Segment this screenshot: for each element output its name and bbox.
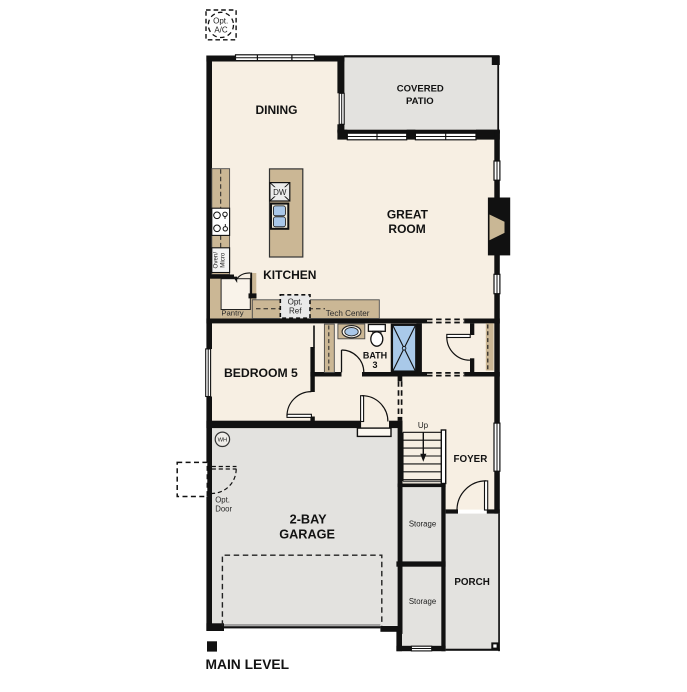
svg-text:DW: DW: [273, 188, 287, 197]
svg-text:Opt.: Opt.: [215, 496, 230, 505]
svg-text:FOYER: FOYER: [454, 454, 488, 465]
svg-text:Micro: Micro: [220, 252, 227, 268]
svg-text:Storage: Storage: [409, 597, 436, 606]
svg-text:3: 3: [372, 360, 377, 370]
svg-text:DINING: DINING: [256, 103, 298, 117]
svg-text:GARAGE: GARAGE: [279, 527, 335, 541]
svg-text:MAIN LEVEL: MAIN LEVEL: [206, 657, 290, 672]
svg-text:Up: Up: [418, 421, 429, 430]
svg-text:A/C: A/C: [214, 26, 228, 35]
svg-text:Oven/: Oven/: [213, 252, 220, 269]
svg-text:PORCH: PORCH: [454, 577, 489, 588]
svg-text:Storage: Storage: [409, 519, 436, 528]
svg-text:2-BAY: 2-BAY: [290, 512, 327, 526]
svg-text:WH: WH: [218, 437, 228, 443]
svg-text:ROOM: ROOM: [388, 222, 425, 236]
svg-text:Tech Center: Tech Center: [326, 309, 370, 318]
svg-text:BATH: BATH: [363, 350, 387, 360]
svg-text:Door: Door: [215, 504, 232, 513]
svg-text:Ref: Ref: [289, 307, 302, 316]
svg-text:COVERED: COVERED: [397, 84, 444, 95]
svg-text:PATIO: PATIO: [406, 96, 434, 107]
svg-text:Opt.: Opt.: [213, 16, 228, 25]
svg-text:KITCHEN: KITCHEN: [263, 268, 316, 282]
svg-text:Opt.: Opt.: [288, 298, 303, 307]
svg-text:BEDROOM 5: BEDROOM 5: [224, 366, 298, 380]
svg-text:GREAT: GREAT: [387, 207, 429, 221]
svg-text:Pantry: Pantry: [221, 309, 243, 318]
